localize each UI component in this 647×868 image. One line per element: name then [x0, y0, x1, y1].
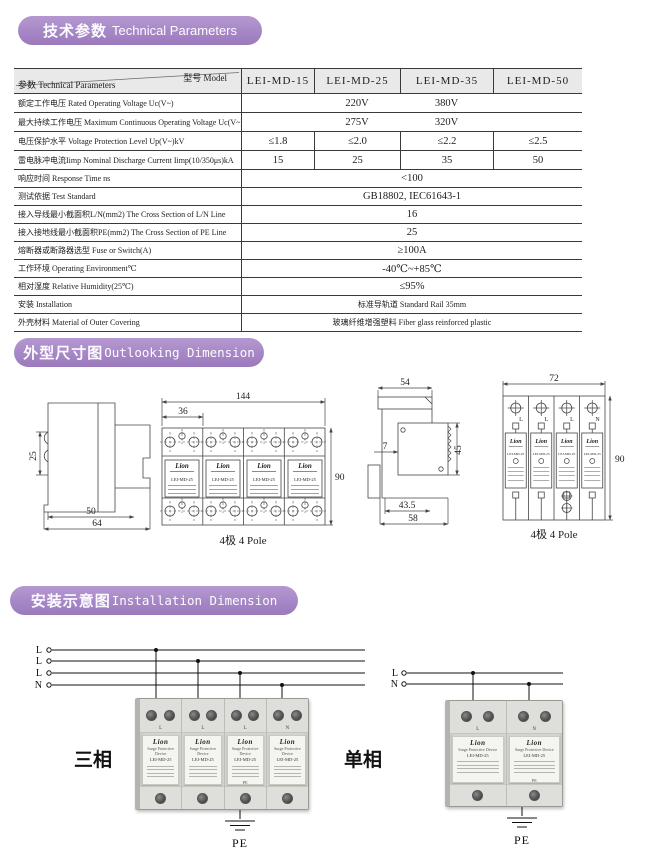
dimension-label: 90 — [615, 455, 625, 465]
dimension-label: 58 — [408, 514, 418, 524]
dimension-label: 7 — [383, 442, 388, 452]
wire-label: L — [392, 668, 398, 679]
screw-terminal-icon — [146, 710, 157, 721]
param-value — [242, 94, 314, 112]
screw-terminal-icon — [164, 710, 175, 721]
dimension-label: 43.5 — [399, 501, 416, 511]
section-title-zh: 技术参数 — [43, 20, 107, 41]
screw-terminal-icon — [472, 790, 483, 801]
terminal-letter: L — [201, 726, 204, 732]
spec-lines — [189, 766, 216, 778]
dimension-label: 90 — [335, 473, 345, 483]
brand-text: Lion — [270, 738, 305, 746]
spd-device-4pole: L Lion Surge Protective Device LEI-MD-25… — [135, 698, 309, 810]
param-value: 25 — [314, 151, 400, 169]
param-row-response-time: 响应时间 Response Time ns <100 — [14, 170, 582, 188]
section-title-zh: 外型尺寸图 — [23, 342, 103, 363]
device-subtitle: Surge Protective Device — [228, 746, 263, 756]
model-column-header: LEI-MD-50 — [493, 69, 582, 93]
dimension-label: 45 — [454, 445, 464, 455]
section-title-installation-dimension: 安装示意图 Installation Dimension — [10, 586, 298, 615]
device-module: N Lion Surge Protective Device LEI-MD-25… — [507, 701, 563, 806]
front-view-4pole-drawing: 144 36 90 4极 4 Pole — [160, 392, 345, 547]
device-subtitle: Surge Protective Device — [510, 747, 560, 752]
dimension-label: 72 — [549, 374, 559, 384]
terminal-block — [182, 786, 223, 809]
table-corner-cell: 型号 Model 参数 Technical Parameters — [14, 69, 242, 93]
terminal-block: L — [140, 699, 181, 733]
front-schematic-4pole-drawing: 72 L L L N 90 4极 4 Pole — [503, 374, 625, 541]
param-label: 安装 Installation — [14, 296, 242, 313]
screw-terminal-icon — [273, 710, 284, 721]
screw-terminal-icon — [248, 710, 259, 721]
terminal-letter: N — [532, 727, 536, 733]
model-text: LEI-MD-25 — [143, 757, 178, 763]
terminal-letter: L — [159, 726, 162, 732]
screw-terminal-icon — [282, 793, 293, 804]
dimension-label: 36 — [178, 407, 188, 417]
param-value: 220V — [314, 94, 400, 112]
param-row-pe-cross-section: 接入接地线最小截面积PE(mm2) The Cross Section of P… — [14, 224, 582, 242]
device-subtitle: Surge Protective Device — [185, 746, 220, 756]
dimension-label: 54 — [400, 378, 410, 388]
wire-label: L — [36, 645, 42, 656]
dimension-label: 144 — [236, 392, 251, 402]
param-label: 电压保护水平 Voltage Protection Level Up(V~)kV — [14, 132, 242, 150]
model-column-header: LEI-MD-25 — [314, 69, 400, 93]
param-row-protection-level: 电压保护水平 Voltage Protection Level Up(V~)kV… — [14, 132, 582, 151]
screw-terminal-icon — [291, 710, 302, 721]
param-row-outer-material: 外壳材料 Material of Outer Covering 玻璃纤维增强塑料… — [14, 314, 582, 332]
spec-lines — [457, 761, 499, 773]
param-value: GB18802, IEC61643-1 — [242, 188, 582, 205]
device-module: N Lion Surge Protective Device LEI-MD-25 — [267, 699, 308, 809]
wire-label: N — [35, 680, 42, 691]
param-label: 工作环境 Operating Environment℃ — [14, 260, 242, 277]
section-title-outlooking-dimension: 外型尺寸图 Outlooking Dimension — [14, 338, 264, 367]
param-value — [493, 94, 582, 112]
module-label: Lion Surge Protective Device LEI-MD-25 — [269, 735, 306, 785]
screw-terminal-icon — [231, 710, 242, 721]
terminal-letter: N — [286, 726, 290, 732]
param-value: 275V — [314, 113, 400, 131]
screw-terminal-icon — [155, 793, 166, 804]
screw-terminal-icon — [461, 711, 472, 722]
phase-label-single: 单相 — [344, 748, 382, 771]
device-subtitle: Surge Protective Device — [143, 746, 178, 756]
param-row-installation: 安装 Installation 标准导轨道 Standard Rail 35mm — [14, 296, 582, 314]
technical-parameters-table: 型号 Model 参数 Technical Parameters LEI-MD-… — [14, 68, 582, 332]
terminal-letter: N — [595, 417, 600, 423]
screw-terminal-icon — [240, 793, 251, 804]
side-view-drawing-2: 54 7 45 43.5 58 — [368, 378, 464, 524]
brand-text: Lion — [228, 738, 263, 746]
param-label: 雷电脉冲电流Iimp Nominal Discharge Current Iim… — [14, 151, 242, 169]
module-label: Lion Surge Protective Device LEI-MD-25 — [142, 735, 179, 785]
section-title-en: Installation Dimension — [112, 593, 278, 608]
model-text: LEI-MD-25 — [453, 753, 503, 759]
terminal-letter: L — [476, 727, 479, 733]
brand-text: Lion — [185, 738, 220, 746]
param-label: 测试依据 Test Standard — [14, 188, 242, 205]
param-value: 标准导轨道 Standard Rail 35mm — [242, 296, 582, 313]
param-label: 外壳材料 Material of Outer Covering — [14, 314, 242, 331]
spd-device-2pole: L Lion Surge Protective Device LEI-MD-25… — [445, 700, 563, 807]
datasheet-page: { "sections": { "technical": {"title_zh"… — [0, 0, 647, 868]
pe-label: PE — [232, 836, 248, 850]
dimension-label: 64 — [92, 519, 102, 529]
dimension-label: 25 — [29, 451, 39, 461]
terminal-block: L — [225, 699, 266, 733]
param-value: 15 — [242, 151, 314, 169]
terminal-letter: L — [519, 417, 523, 423]
param-row-impulse-current: 雷电脉冲电流Iimp Nominal Discharge Current Iim… — [14, 151, 582, 170]
param-row-fuse: 熔断器或断路器选型 Fuse or Switch(A) ≥100A — [14, 242, 582, 260]
param-label: 熔断器或断路器选型 Fuse or Switch(A) — [14, 242, 242, 259]
terminal-block — [140, 786, 181, 809]
pe-marking: PE — [242, 780, 247, 785]
param-value: ≤2.5 — [493, 132, 582, 150]
param-value: ≤1.8 — [242, 132, 314, 150]
section-title-zh: 安装示意图 — [31, 590, 111, 611]
screw-terminal-icon — [518, 711, 529, 722]
param-label: 接入导线最小截面积L/N(mm2) The Cross Section of L… — [14, 206, 242, 223]
param-row-test-standard: 测试依据 Test Standard GB18802, IEC61643-1 — [14, 188, 582, 206]
param-value: ≤95% — [242, 278, 582, 295]
phase-label-three: 三相 — [74, 749, 112, 771]
screw-terminal-icon — [483, 711, 494, 722]
model-text: LEI-MD-25 — [185, 757, 220, 763]
brand-text: Lion — [453, 739, 503, 747]
device-module: L Lion Surge Protective Device LEI-MD-25 — [140, 699, 182, 809]
param-value: <100 — [242, 170, 582, 187]
param-row-rated-voltage: 额定工作电压 Rated Operating Voltage Uc(V~) 22… — [14, 94, 582, 113]
side-view-drawing-1: 25 50 64 — [29, 403, 150, 529]
param-value: ≥100A — [242, 242, 582, 259]
module-label: Lion Surge Protective Device LEI-MD-25 — [509, 736, 561, 784]
module-label: Lion Surge Protective Device LEI-MD-25 — [452, 736, 504, 784]
param-value: 50 — [493, 151, 582, 169]
param-value: ≤2.0 — [314, 132, 400, 150]
terminal-letter: L — [570, 417, 574, 423]
param-label: 接入接地线最小截面积PE(mm2) The Cross Section of P… — [14, 224, 242, 241]
brand-text: Lion — [143, 738, 178, 746]
spec-lines — [232, 766, 259, 778]
screw-terminal-icon — [189, 710, 200, 721]
param-value: 380V — [400, 94, 493, 112]
param-row-operating-environment: 工作环境 Operating Environment℃ -40℃~+85℃ — [14, 260, 582, 278]
pole-caption: 4极 4 Pole — [530, 527, 577, 541]
terminal-block: PE — [225, 786, 266, 809]
device-subtitle: Surge Protective Device — [270, 746, 305, 756]
terminal-block: N — [267, 699, 308, 733]
terminal-block — [267, 786, 308, 809]
param-row-ln-cross-section: 接入导线最小截面积L/N(mm2) The Cross Section of L… — [14, 206, 582, 224]
param-value: 25 — [242, 224, 582, 241]
module-label: Lion Surge Protective Device LEI-MD-25 — [184, 735, 221, 785]
screw-terminal-icon — [197, 793, 208, 804]
brand-text: Lion — [510, 739, 560, 747]
wire-label: N — [391, 679, 398, 690]
screw-terminal-icon — [206, 710, 217, 721]
wire-label: L — [36, 668, 42, 679]
param-value — [493, 113, 582, 131]
section-title-en: Outlooking Dimension — [104, 345, 255, 360]
param-value: 玻璃纤维增强塑料 Fiber glass reinforced plastic — [242, 314, 582, 331]
param-label: 响应时间 Response Time ns — [14, 170, 242, 187]
param-value: -40℃~+85℃ — [242, 260, 582, 277]
terminal-block: L — [450, 701, 506, 734]
param-label: 相对湿度 Relative Humidity(25℃) — [14, 278, 242, 295]
device-subtitle: Surge Protective Device — [453, 747, 503, 752]
pe-label: PE — [514, 833, 530, 847]
terminal-letter: L — [244, 726, 247, 732]
model-column-header: LEI-MD-15 — [242, 69, 314, 93]
model-text: LEI-MD-25 — [228, 757, 263, 763]
spec-lines — [147, 766, 174, 778]
device-module: L Lion Surge Protective Device LEI-MD-25 — [450, 701, 507, 806]
spec-lines — [274, 766, 301, 778]
terminal-block: PE — [507, 784, 563, 806]
model-column-header: LEI-MD-35 — [400, 69, 493, 93]
device-module: L Lion Surge Protective Device LEI-MD-25… — [225, 699, 267, 809]
pole-caption: 4极 4 Pole — [219, 533, 266, 547]
param-label: 最大持续工作电压 Maximum Continuous Operating Vo… — [14, 113, 242, 131]
dimension-label: 50 — [86, 507, 96, 517]
section-title-en: Technical Parameters — [112, 23, 237, 38]
module-label: Lion Surge Protective Device LEI-MD-25 — [227, 735, 264, 785]
model-text: LEI-MD-25 — [510, 753, 560, 759]
model-text: LEI-MD-25 — [270, 757, 305, 763]
section-title-technical-parameters: 技术参数 Technical Parameters — [18, 16, 262, 45]
corner-label-model: 型号 Model — [183, 71, 227, 84]
screw-terminal-icon — [529, 790, 540, 801]
param-value: 16 — [242, 206, 582, 223]
param-row-humidity: 相对湿度 Relative Humidity(25℃) ≤95% — [14, 278, 582, 296]
terminal-letter: L — [545, 417, 549, 423]
param-value: 320V — [400, 113, 493, 131]
param-value: 35 — [400, 151, 493, 169]
param-value — [242, 113, 314, 131]
table-header-row: 型号 Model 参数 Technical Parameters LEI-MD-… — [14, 69, 582, 94]
outline-dimensions-figure: Lion LEI-MD-25 Lion LEI-MD-25 — [0, 368, 647, 583]
terminal-block: N — [507, 701, 563, 734]
param-value: ≤2.2 — [400, 132, 493, 150]
param-row-max-continuous-voltage: 最大持续工作电压 Maximum Continuous Operating Vo… — [14, 113, 582, 132]
param-label: 额定工作电压 Rated Operating Voltage Uc(V~) — [14, 94, 242, 112]
spec-lines — [514, 761, 556, 773]
corner-label-parameters: 参数 Technical Parameters — [18, 78, 115, 91]
screw-terminal-icon — [540, 711, 551, 722]
terminal-block: L — [182, 699, 223, 733]
terminal-block — [450, 784, 506, 806]
device-module: L Lion Surge Protective Device LEI-MD-25 — [182, 699, 224, 809]
pe-marking: PE — [532, 778, 537, 783]
wire-label: L — [36, 656, 42, 667]
